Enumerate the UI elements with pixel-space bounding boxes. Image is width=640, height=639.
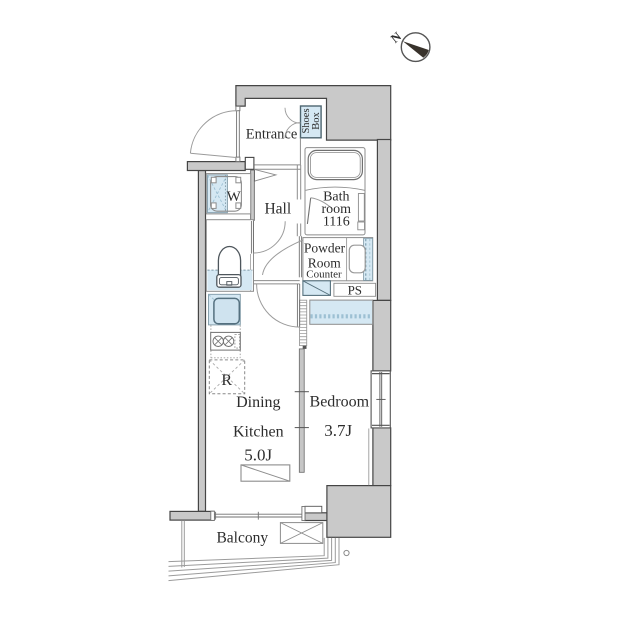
svg-text:3.7J: 3.7J — [324, 421, 352, 440]
svg-text:Counter: Counter — [306, 269, 342, 281]
svg-text:Kitchen: Kitchen — [233, 423, 284, 440]
svg-text:PS: PS — [348, 282, 362, 297]
svg-text:W: W — [227, 189, 242, 205]
svg-text:Balcony: Balcony — [216, 530, 268, 547]
svg-text:R: R — [221, 372, 232, 389]
svg-text:Box: Box — [311, 112, 322, 130]
svg-text:Powder: Powder — [304, 240, 346, 255]
svg-text:Dining: Dining — [236, 394, 280, 411]
svg-text:Entrance: Entrance — [246, 127, 298, 143]
svg-text:5.0J: 5.0J — [244, 446, 272, 465]
svg-text:Hall: Hall — [264, 201, 291, 218]
svg-text:Bedroom: Bedroom — [310, 394, 370, 411]
svg-text:1116: 1116 — [323, 215, 350, 230]
